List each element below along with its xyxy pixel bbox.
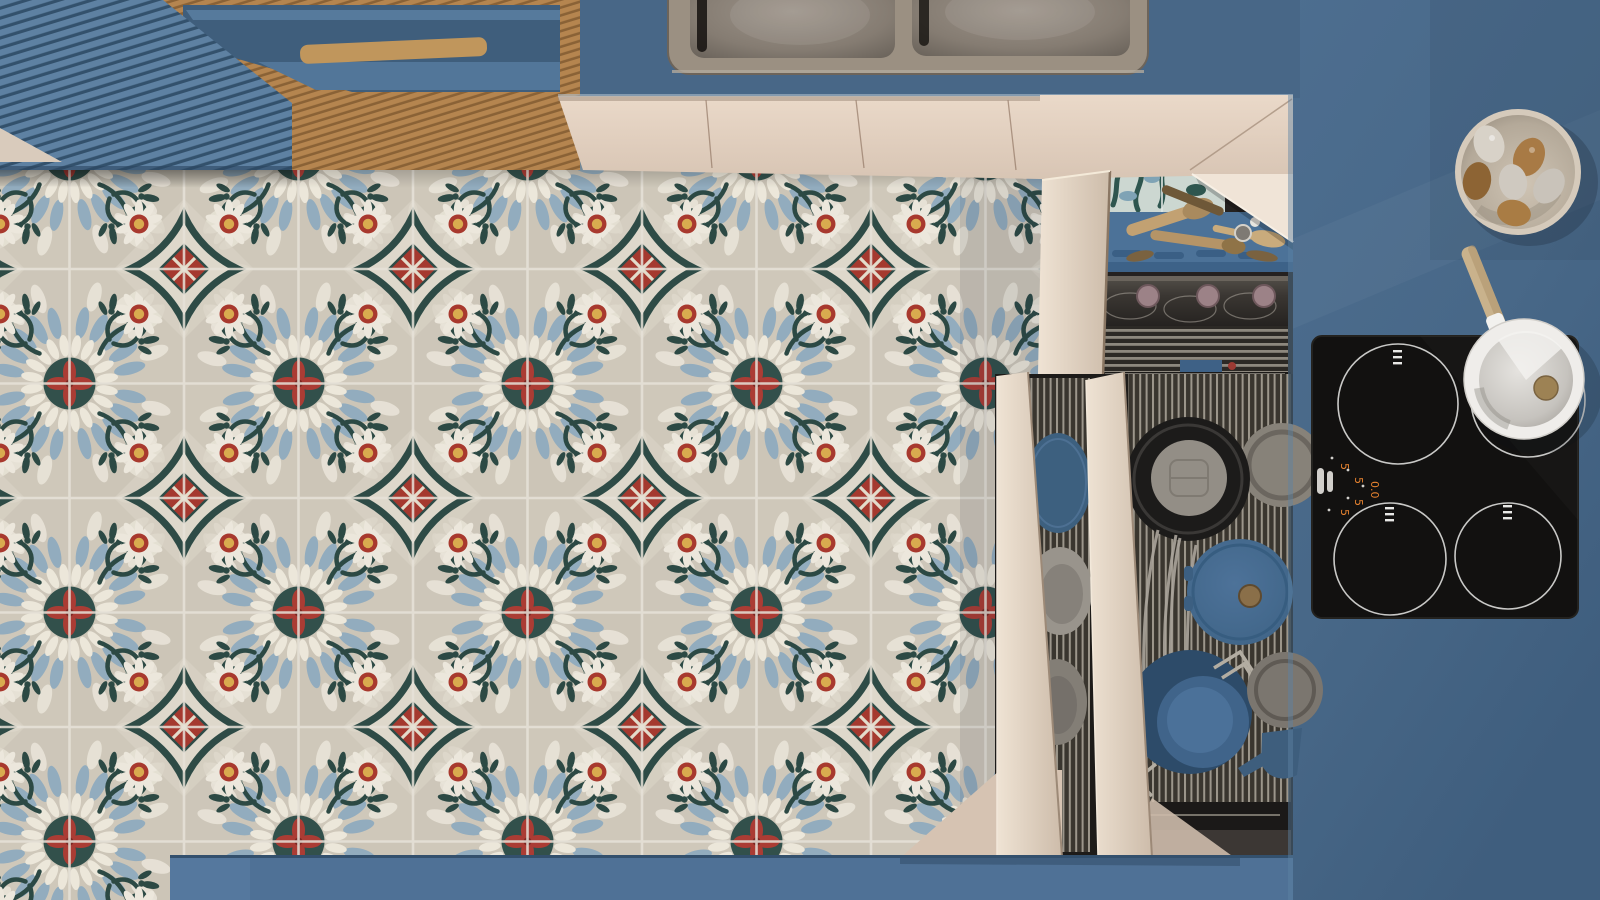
base-cabinet-band [170,855,1293,900]
display-digit: 5 [1352,477,1365,484]
stove-alcove [1038,95,1293,392]
counter-edge-highlight [1288,95,1293,900]
sink [668,0,1148,74]
display-digit: 5 [1338,509,1351,516]
range-knob-panel [1102,276,1288,326]
kitchen-scene: 5 5 0.0 5 5 [0,0,1600,900]
tile-floor [0,158,1048,900]
range-knob [1137,285,1159,307]
display-digit: 5 [1338,463,1351,470]
display-digit: 5 [1352,499,1365,506]
canopy-shadow [0,170,292,188]
saucepan-knob [1534,376,1558,400]
pot-gray-bottom [1247,652,1323,728]
open-door-panel [1038,171,1110,377]
range-knob [1253,285,1275,307]
scene-svg: 5 5 0.0 5 5 [0,0,1600,900]
range-knob [1197,285,1219,307]
alcove-ceiling [1040,95,1293,179]
display-timer: 0.0 [1368,481,1381,499]
dutch-oven-knob [1239,585,1261,607]
